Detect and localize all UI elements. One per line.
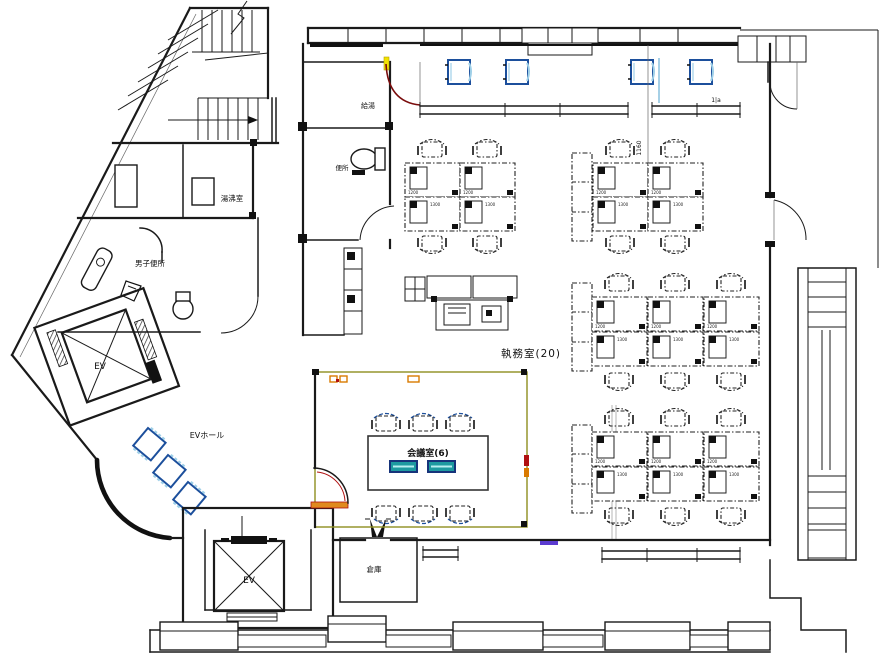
south-wall: [333, 540, 770, 563]
desk-dimension: 1200: [707, 324, 718, 329]
door-hardware-mark: [524, 455, 529, 466]
double-door-leaf: [377, 519, 386, 537]
toilet-label: 便所: [336, 163, 350, 172]
break-line: [231, 1, 247, 34]
lounge-chair: [132, 426, 167, 461]
work-chair: [661, 373, 689, 391]
floor-plan-canvas: 湯沸室 男子便所 EV EVホール EV: [0, 0, 886, 663]
cabinet-strip: [572, 153, 592, 241]
meeting-chair: [372, 414, 400, 432]
hot-water-room-label: 湯沸室: [221, 193, 244, 203]
lounge-chair: [628, 60, 654, 84]
elevator-lower-label: EV: [243, 576, 256, 586]
desk-dimension: 1200: [596, 190, 607, 195]
copier-island: [405, 276, 517, 330]
columns: [249, 122, 393, 243]
stairs: [118, 8, 276, 143]
mens-toilet-room: 男子便所: [58, 218, 258, 333]
desk-dimension: 1200: [595, 459, 606, 464]
door-arc-wc: [360, 206, 394, 240]
door-jamb-hatch: [135, 319, 157, 360]
lounge-chair: [152, 453, 187, 488]
accent-purple-mark: [540, 541, 558, 545]
door-hardware-mark: [524, 468, 529, 477]
lounge-chair: [687, 60, 713, 84]
door-hardware-mark: [340, 376, 347, 382]
ev-hall: EVホール: [132, 426, 224, 515]
top-right-corner: [738, 30, 878, 268]
lounge-chair: [172, 480, 207, 515]
work-chair: [661, 236, 689, 254]
desk-dimension: 1300: [430, 202, 441, 207]
work-chair: [717, 274, 745, 292]
kitchenette-label: 給湯: [361, 101, 375, 110]
ev-hall-label: EVホール: [190, 431, 225, 440]
lounge-chair: [503, 60, 529, 84]
lounge-chair: [445, 60, 471, 84]
door-jamb-hatch: [47, 330, 68, 367]
door-hardware-dot: [336, 379, 339, 382]
work-chair: [661, 508, 689, 526]
work-chair: [473, 236, 501, 254]
elevator-upper-label: EV: [94, 362, 107, 372]
desk-dimension: 1300: [617, 337, 628, 342]
hot-water-room: 湯沸室: [78, 143, 278, 218]
meeting-room-label: 会議室(6): [407, 447, 449, 459]
work-chair: [418, 236, 446, 254]
elevator-lower: EV: [183, 508, 333, 628]
desk-dimension: 1200: [651, 324, 662, 329]
dimension-grid: 1160: [636, 140, 643, 155]
office-label: 執務室(20): [501, 347, 561, 360]
desk-dimension: 1200: [408, 190, 419, 195]
balcony-steps: [770, 560, 846, 652]
double-door-leaf: [370, 519, 377, 537]
dimension-counter: 1|a: [711, 97, 721, 104]
balcony: [770, 268, 856, 652]
desk-dimension: 1300: [617, 472, 628, 477]
work-chair: [661, 140, 689, 158]
work-chair: [605, 508, 633, 526]
cabinet-strip: [572, 425, 592, 513]
desk-dimension: 1200: [651, 190, 662, 195]
meeting-chair: [446, 414, 474, 432]
work-chair: [606, 140, 634, 158]
work-chair: [606, 236, 634, 254]
work-chair: [717, 508, 745, 526]
storage-label: 倉庫: [367, 564, 382, 574]
elevator-upper: EV: [34, 288, 179, 425]
door-arc-meeting-west-red: [317, 472, 345, 501]
work-chair: [717, 409, 745, 427]
work-chair: [605, 409, 633, 427]
door-hardware-mark: [330, 376, 337, 382]
work-chair: [661, 274, 689, 292]
stair-direction-arrow: [248, 116, 258, 124]
door-arc-east: [774, 200, 806, 240]
desk-dimension: 1300: [729, 337, 740, 342]
work-chair: [661, 409, 689, 427]
storage-room: 倉庫: [340, 519, 458, 602]
work-chair: [605, 373, 633, 391]
desk-dimension: 1300: [729, 472, 740, 477]
desk-cluster-a: 1200 1200 1300 1300: [405, 140, 515, 254]
desk-dimension: 1200: [651, 459, 662, 464]
desk-dimension: 1200: [595, 324, 606, 329]
desk-dimension: 1300: [618, 202, 629, 207]
meeting-chair: [446, 506, 474, 524]
west-service-rooms: 給湯 便所: [272, 44, 394, 335]
desk-dimension: 1300: [485, 202, 496, 207]
door-sill-orange: [311, 502, 348, 508]
desk-dimension: 1200: [463, 190, 474, 195]
door-hardware-mark: [408, 376, 419, 382]
meeting-chair: [409, 506, 437, 524]
counter-top: [420, 102, 740, 118]
mens-toilet-label: 男子便所: [135, 258, 165, 268]
meeting-room: 会議室(6): [311, 369, 529, 527]
desk-cluster-c: 1200 1200 1200 1300 1300 1300: [572, 274, 759, 391]
east-wall: [765, 44, 806, 545]
door-arc-meeting-west: [314, 468, 348, 503]
desk-dimension: 1300: [673, 337, 684, 342]
door-arc-top-right: [770, 82, 797, 109]
cabinet-strip: [572, 283, 592, 371]
desk-dimension: 1300: [673, 202, 684, 207]
elevator-door: [231, 536, 267, 544]
door-arc-toilet: [221, 296, 258, 333]
work-chair: [418, 140, 446, 158]
desk-dimension: 1300: [673, 472, 684, 477]
meeting-chair: [409, 414, 437, 432]
work-chair: [605, 274, 633, 292]
window-band-top: [308, 28, 740, 55]
meeting-chair: [372, 506, 400, 524]
work-chair: [717, 373, 745, 391]
desk-dimension: 1200: [707, 459, 718, 464]
work-chair: [473, 140, 501, 158]
desk-cluster-d: 1200 1200 1200 1300 1300 1300: [572, 409, 759, 526]
